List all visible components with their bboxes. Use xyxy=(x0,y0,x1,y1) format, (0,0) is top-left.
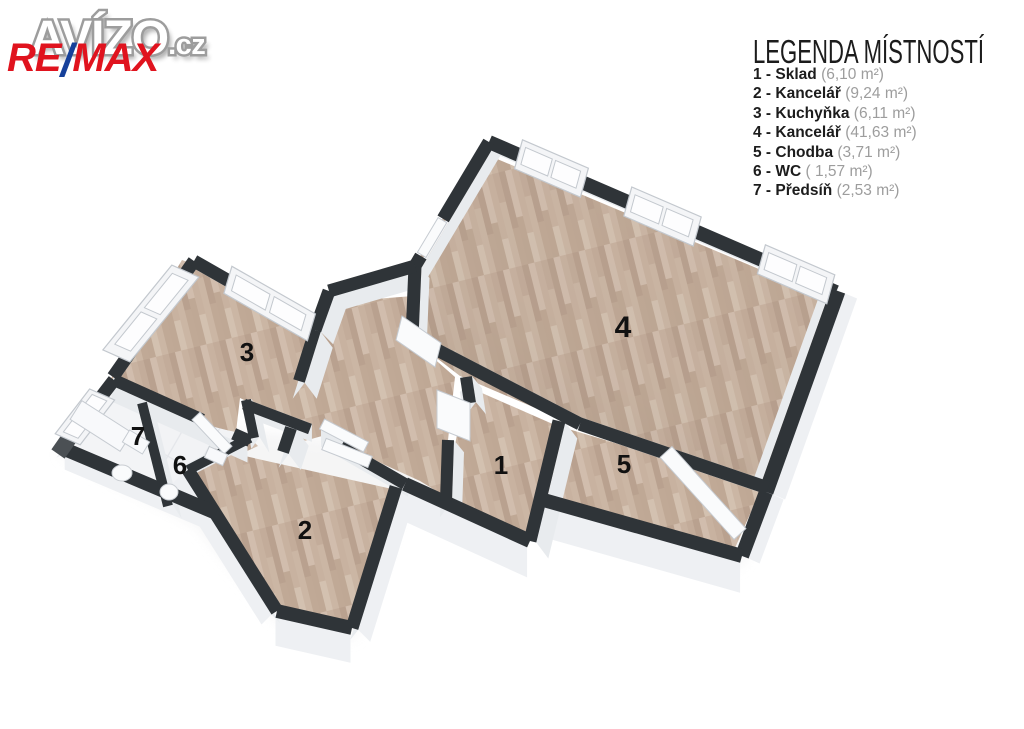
svg-text:5: 5 xyxy=(617,449,631,479)
svg-text:4: 4 xyxy=(615,311,632,344)
svg-text:3: 3 xyxy=(240,337,254,367)
svg-text:7: 7 xyxy=(131,421,145,451)
svg-text:1: 1 xyxy=(494,450,508,480)
svg-text:6: 6 xyxy=(173,450,187,480)
svg-text:2: 2 xyxy=(298,515,312,545)
